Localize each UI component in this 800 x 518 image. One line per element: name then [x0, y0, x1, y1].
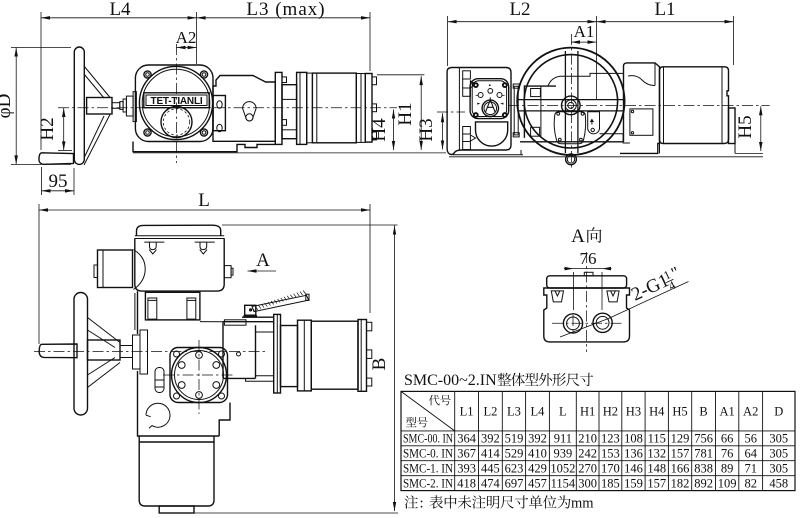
svg-text:φD: φD — [0, 94, 15, 119]
svg-text:L4: L4 — [531, 405, 546, 419]
svg-text:393: 393 — [457, 462, 476, 476]
svg-text:71: 71 — [744, 462, 757, 476]
svg-text:159: 159 — [624, 476, 643, 490]
svg-text:SMC-1. IN: SMC-1. IN — [403, 462, 453, 476]
svg-text:L3 (max): L3 (max) — [246, 0, 325, 20]
svg-text:458: 458 — [769, 476, 788, 490]
svg-text:146: 146 — [624, 462, 643, 476]
svg-text:185: 185 — [601, 476, 620, 490]
svg-text:429: 429 — [528, 462, 547, 476]
svg-text:H2: H2 — [37, 117, 58, 140]
svg-text:300: 300 — [578, 476, 597, 490]
svg-text:L2: L2 — [483, 405, 497, 419]
svg-text:64: 64 — [744, 447, 757, 461]
svg-text:TET-TIANLI: TET-TIANLI — [151, 96, 203, 107]
svg-text:H1: H1 — [580, 405, 595, 419]
svg-text:132: 132 — [647, 447, 666, 461]
svg-text:mm: mm — [571, 496, 594, 512]
svg-text:756: 756 — [694, 432, 713, 446]
svg-text:A1: A1 — [574, 22, 595, 41]
svg-text:170: 170 — [601, 462, 620, 476]
svg-text:H5: H5 — [735, 115, 756, 138]
svg-text:A: A — [256, 250, 270, 271]
svg-text:SMC-0. IN: SMC-0. IN — [403, 447, 453, 461]
svg-text:519: 519 — [505, 432, 524, 446]
svg-text:129: 129 — [671, 432, 690, 446]
svg-text:L: L — [559, 405, 567, 419]
svg-text:1052: 1052 — [550, 462, 575, 476]
svg-text:445: 445 — [481, 462, 500, 476]
svg-text:L1: L1 — [460, 405, 474, 419]
svg-text:392: 392 — [528, 432, 547, 446]
svg-text:A2: A2 — [176, 28, 197, 47]
svg-text:781: 781 — [694, 447, 713, 461]
svg-text:305: 305 — [769, 447, 788, 461]
svg-text:H3: H3 — [416, 118, 437, 141]
svg-text:L4: L4 — [109, 0, 131, 20]
svg-text:305: 305 — [769, 462, 788, 476]
svg-text:210: 210 — [578, 432, 597, 446]
svg-text:474: 474 — [481, 476, 501, 490]
svg-text:892: 892 — [694, 476, 713, 490]
svg-text:66: 66 — [721, 432, 734, 446]
svg-text:242: 242 — [578, 447, 597, 461]
svg-text:157: 157 — [671, 447, 690, 461]
svg-text:305: 305 — [769, 432, 788, 446]
svg-text:SMC-00. IN: SMC-00. IN — [403, 432, 453, 446]
svg-text:A: A — [571, 226, 585, 247]
svg-text:H3: H3 — [626, 405, 641, 419]
svg-text:136: 136 — [624, 447, 643, 461]
svg-text:367: 367 — [457, 447, 476, 461]
svg-text:457: 457 — [528, 476, 547, 490]
svg-text:115: 115 — [648, 432, 666, 446]
svg-text:157: 157 — [647, 476, 666, 490]
svg-text:82: 82 — [744, 476, 757, 490]
svg-text:B: B — [369, 358, 390, 371]
svg-text:697: 697 — [505, 476, 524, 490]
svg-text:123: 123 — [601, 432, 620, 446]
svg-text:838: 838 — [694, 462, 713, 476]
svg-text:H2: H2 — [603, 405, 618, 419]
svg-text:L: L — [198, 190, 210, 211]
svg-text:A2: A2 — [743, 405, 758, 419]
svg-text:148: 148 — [647, 462, 666, 476]
svg-text:SMC-00~2.IN: SMC-00~2.IN — [404, 372, 497, 389]
svg-text:270: 270 — [578, 462, 597, 476]
svg-text:410: 410 — [528, 447, 547, 461]
svg-text:418: 418 — [457, 476, 476, 490]
svg-text:H4: H4 — [649, 405, 665, 419]
svg-text:L3: L3 — [507, 405, 521, 419]
svg-text:95: 95 — [49, 171, 68, 192]
svg-text:1154: 1154 — [551, 476, 576, 490]
svg-text:76: 76 — [580, 249, 597, 268]
svg-text:B: B — [699, 405, 707, 419]
svg-text:153: 153 — [601, 447, 620, 461]
svg-text:SMC-2. IN: SMC-2. IN — [403, 476, 453, 490]
svg-text:939: 939 — [553, 447, 572, 461]
svg-text:56: 56 — [744, 432, 757, 446]
svg-text:109: 109 — [718, 476, 737, 490]
svg-text:166: 166 — [671, 462, 690, 476]
svg-text:623: 623 — [505, 462, 524, 476]
svg-text:A1: A1 — [720, 405, 735, 419]
svg-text:108: 108 — [624, 432, 643, 446]
svg-text:364: 364 — [457, 432, 477, 446]
svg-text:414: 414 — [481, 447, 501, 461]
svg-text:89: 89 — [721, 462, 734, 476]
svg-text:182: 182 — [671, 476, 690, 490]
svg-text:529: 529 — [505, 447, 524, 461]
svg-text:H4: H4 — [369, 118, 390, 142]
svg-text::: : — [420, 496, 424, 512]
svg-text:911: 911 — [554, 432, 572, 446]
svg-text:392: 392 — [481, 432, 500, 446]
svg-text:H5: H5 — [672, 405, 687, 419]
svg-text:D: D — [774, 405, 783, 419]
svg-text:L2: L2 — [509, 0, 530, 20]
svg-text:H1: H1 — [395, 102, 416, 125]
svg-text:76: 76 — [721, 447, 734, 461]
svg-text:L1: L1 — [654, 0, 675, 20]
